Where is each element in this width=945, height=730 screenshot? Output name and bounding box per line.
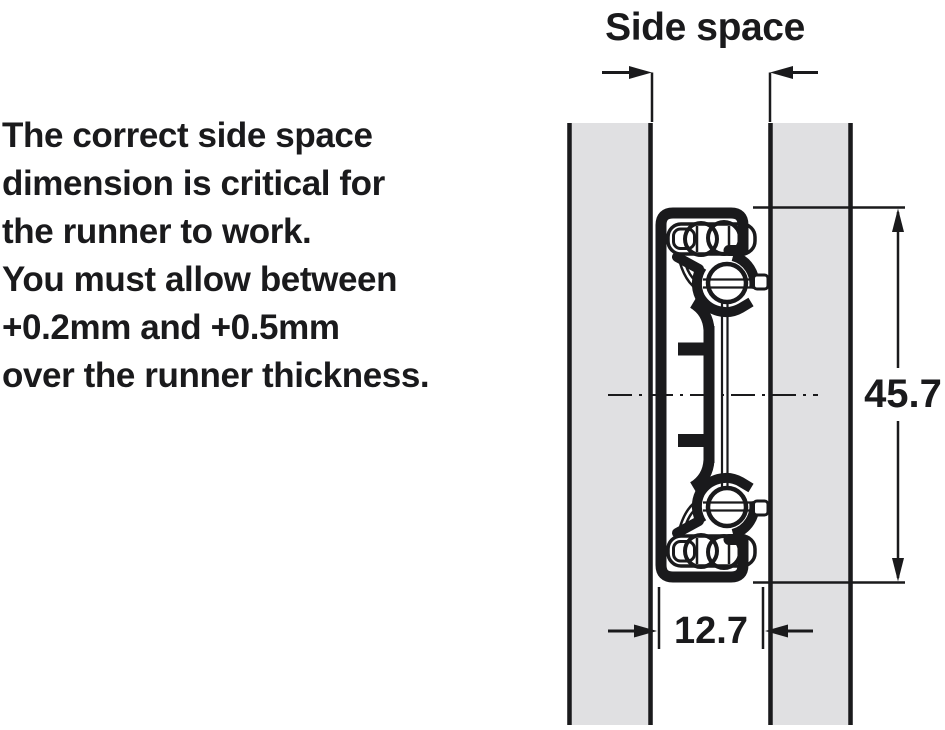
side-space-arrow-left <box>602 66 652 122</box>
dimension-height-label: 45.7 <box>864 372 942 416</box>
side-space-arrow-right <box>770 66 818 122</box>
mounting-tab <box>754 275 769 289</box>
arrow-left-icon <box>770 66 793 79</box>
arrow-right-icon <box>629 66 652 79</box>
side-space-diagram: 45.7 12.7 <box>0 0 945 730</box>
roller-bearing <box>708 264 746 302</box>
runner-upper-assembly <box>668 222 768 330</box>
runner-lower-assembly <box>668 460 768 568</box>
page: The correct side space dimension is crit… <box>0 0 945 730</box>
arrow-up-icon <box>892 209 904 233</box>
dimension-thickness-label: 12.7 <box>674 610 748 652</box>
arrow-down-icon <box>892 558 904 582</box>
